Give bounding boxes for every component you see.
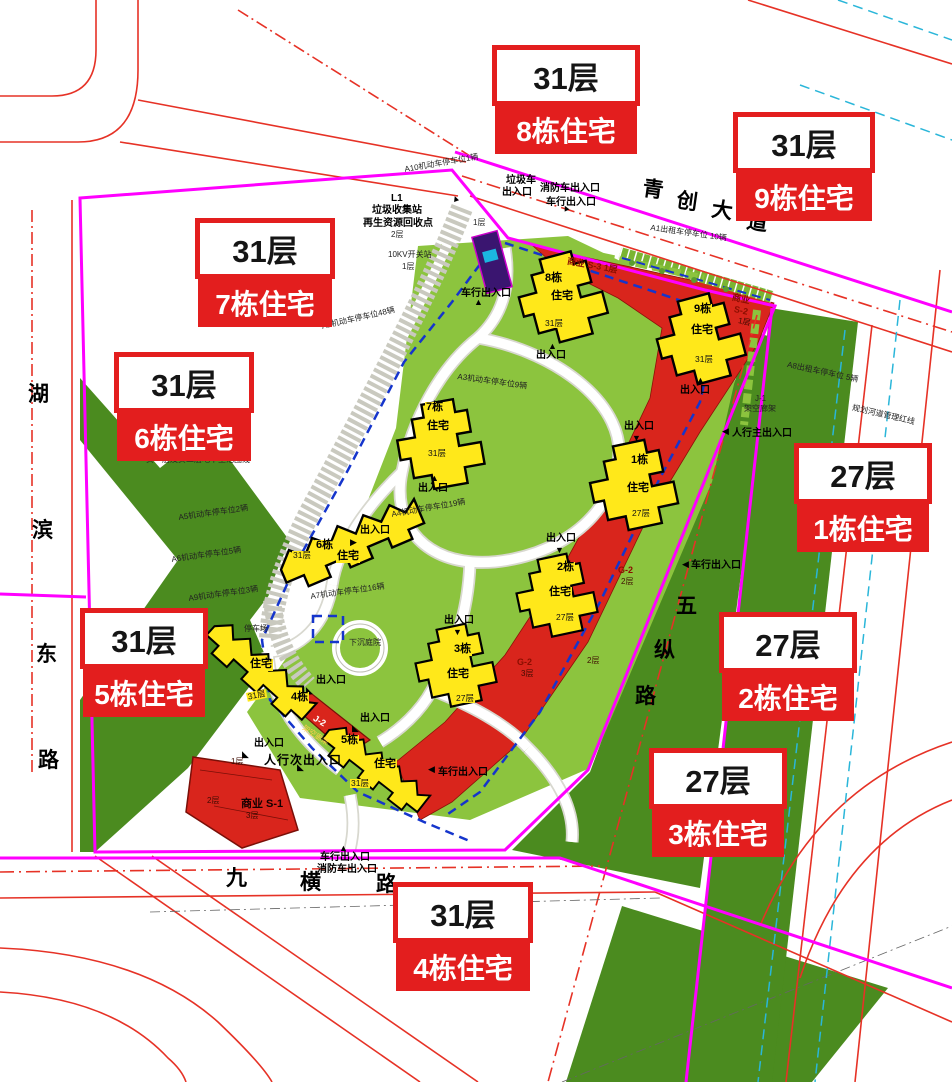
callout-floors: 31层 bbox=[114, 352, 254, 413]
callout-6栋住宅: 31层6栋住宅 bbox=[114, 352, 254, 461]
callout-building-name: 9栋住宅 bbox=[736, 173, 872, 221]
callout-7栋住宅: 31层7栋住宅 bbox=[195, 218, 335, 327]
callout-5栋住宅: 31层5栋住宅 bbox=[80, 608, 208, 717]
callout-2栋住宅: 27层2栋住宅 bbox=[719, 612, 857, 721]
callout-9栋住宅: 31层9栋住宅 bbox=[733, 112, 875, 221]
callout-building-name: 6栋住宅 bbox=[117, 413, 251, 461]
callout-floors: 27层 bbox=[719, 612, 857, 673]
callout-floors: 31层 bbox=[195, 218, 335, 279]
callout-building-name: 3栋住宅 bbox=[652, 809, 784, 857]
callout-building-name: 8栋住宅 bbox=[495, 106, 637, 154]
callouts-layer: 31层8栋住宅31层9栋住宅31层7栋住宅31层6栋住宅27层1栋住宅27层2栋… bbox=[0, 0, 952, 1082]
callout-floors: 27层 bbox=[794, 443, 932, 504]
site-plan: A10机动车停车位1辆垃圾车出入口▲消防车出入口车行出入口▲L1垃圾收集站再生资… bbox=[0, 0, 952, 1082]
callout-building-name: 4栋住宅 bbox=[396, 943, 530, 991]
callout-4栋住宅: 31层4栋住宅 bbox=[393, 882, 533, 991]
callout-building-name: 5栋住宅 bbox=[83, 669, 206, 717]
callout-building-name: 7栋住宅 bbox=[198, 279, 332, 327]
callout-1栋住宅: 27层1栋住宅 bbox=[794, 443, 932, 552]
callout-building-name: 1栋住宅 bbox=[797, 504, 929, 552]
callout-building-name: 2栋住宅 bbox=[722, 673, 854, 721]
callout-3栋住宅: 27层3栋住宅 bbox=[649, 748, 787, 857]
callout-8栋住宅: 31层8栋住宅 bbox=[492, 45, 640, 154]
callout-floors: 31层 bbox=[492, 45, 640, 106]
callout-floors: 31层 bbox=[393, 882, 533, 943]
callout-floors: 27层 bbox=[649, 748, 787, 809]
callout-floors: 31层 bbox=[733, 112, 875, 173]
callout-floors: 31层 bbox=[80, 608, 208, 669]
